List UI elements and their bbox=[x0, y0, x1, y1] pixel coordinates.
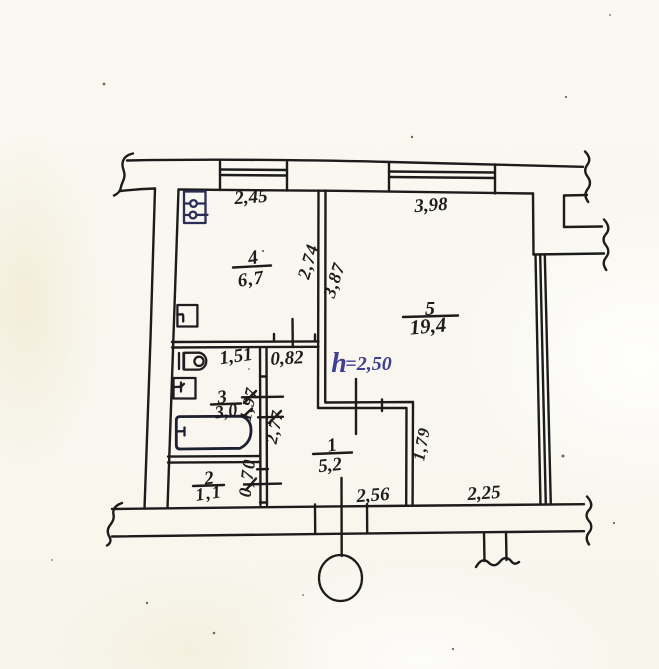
svg-text:1,51: 1,51 bbox=[218, 344, 254, 369]
svg-text:2,56: 2,56 bbox=[355, 484, 391, 507]
svg-text:2,45: 2,45 bbox=[233, 186, 269, 209]
svg-text:5,2: 5,2 bbox=[317, 454, 343, 477]
svg-text:19,4: 19,4 bbox=[409, 312, 448, 339]
svg-text:0,70: 0,70 bbox=[235, 457, 260, 499]
svg-text:=2,50: =2,50 bbox=[345, 353, 391, 375]
svg-text:2,25: 2,25 bbox=[466, 482, 502, 505]
svg-text:0,82: 0,82 bbox=[270, 347, 305, 370]
svg-text:3,87: 3,87 bbox=[319, 260, 349, 301]
svg-text:2,77: 2,77 bbox=[262, 408, 288, 446]
svg-text:6,7: 6,7 bbox=[236, 267, 266, 292]
svg-text:3,98: 3,98 bbox=[413, 194, 449, 217]
svg-text:1,1: 1,1 bbox=[194, 481, 224, 505]
